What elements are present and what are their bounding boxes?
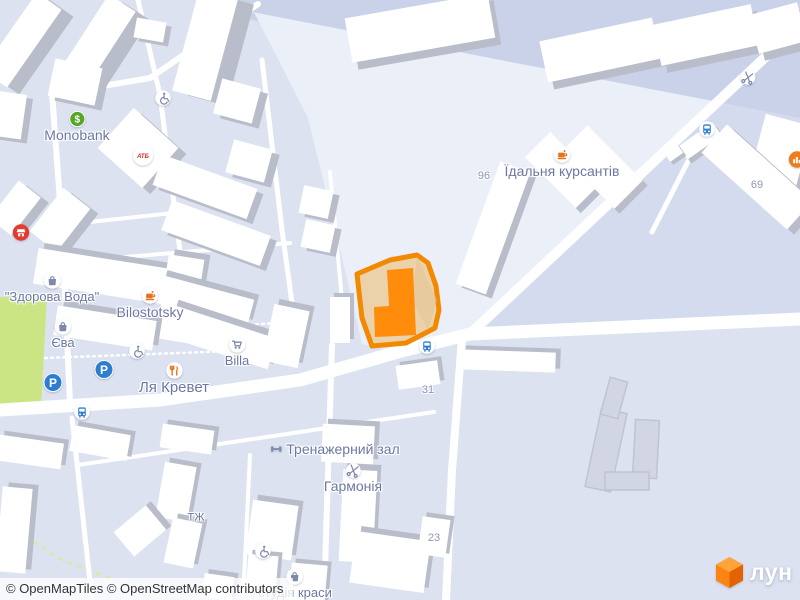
map-canvas[interactable] bbox=[0, 0, 800, 600]
park-area bbox=[0, 296, 47, 412]
map-container: $MonobankАТБ"Здорова Вода"BilostotskyЄва… bbox=[0, 0, 800, 600]
lun-logo-text: лун bbox=[750, 559, 793, 586]
attribution[interactable]: © OpenMapTiles © OpenStreetMap contribut… bbox=[0, 578, 293, 600]
highlight-group bbox=[357, 255, 439, 346]
lun-cube-icon bbox=[716, 557, 743, 588]
lun-logo[interactable]: лун bbox=[716, 557, 793, 588]
